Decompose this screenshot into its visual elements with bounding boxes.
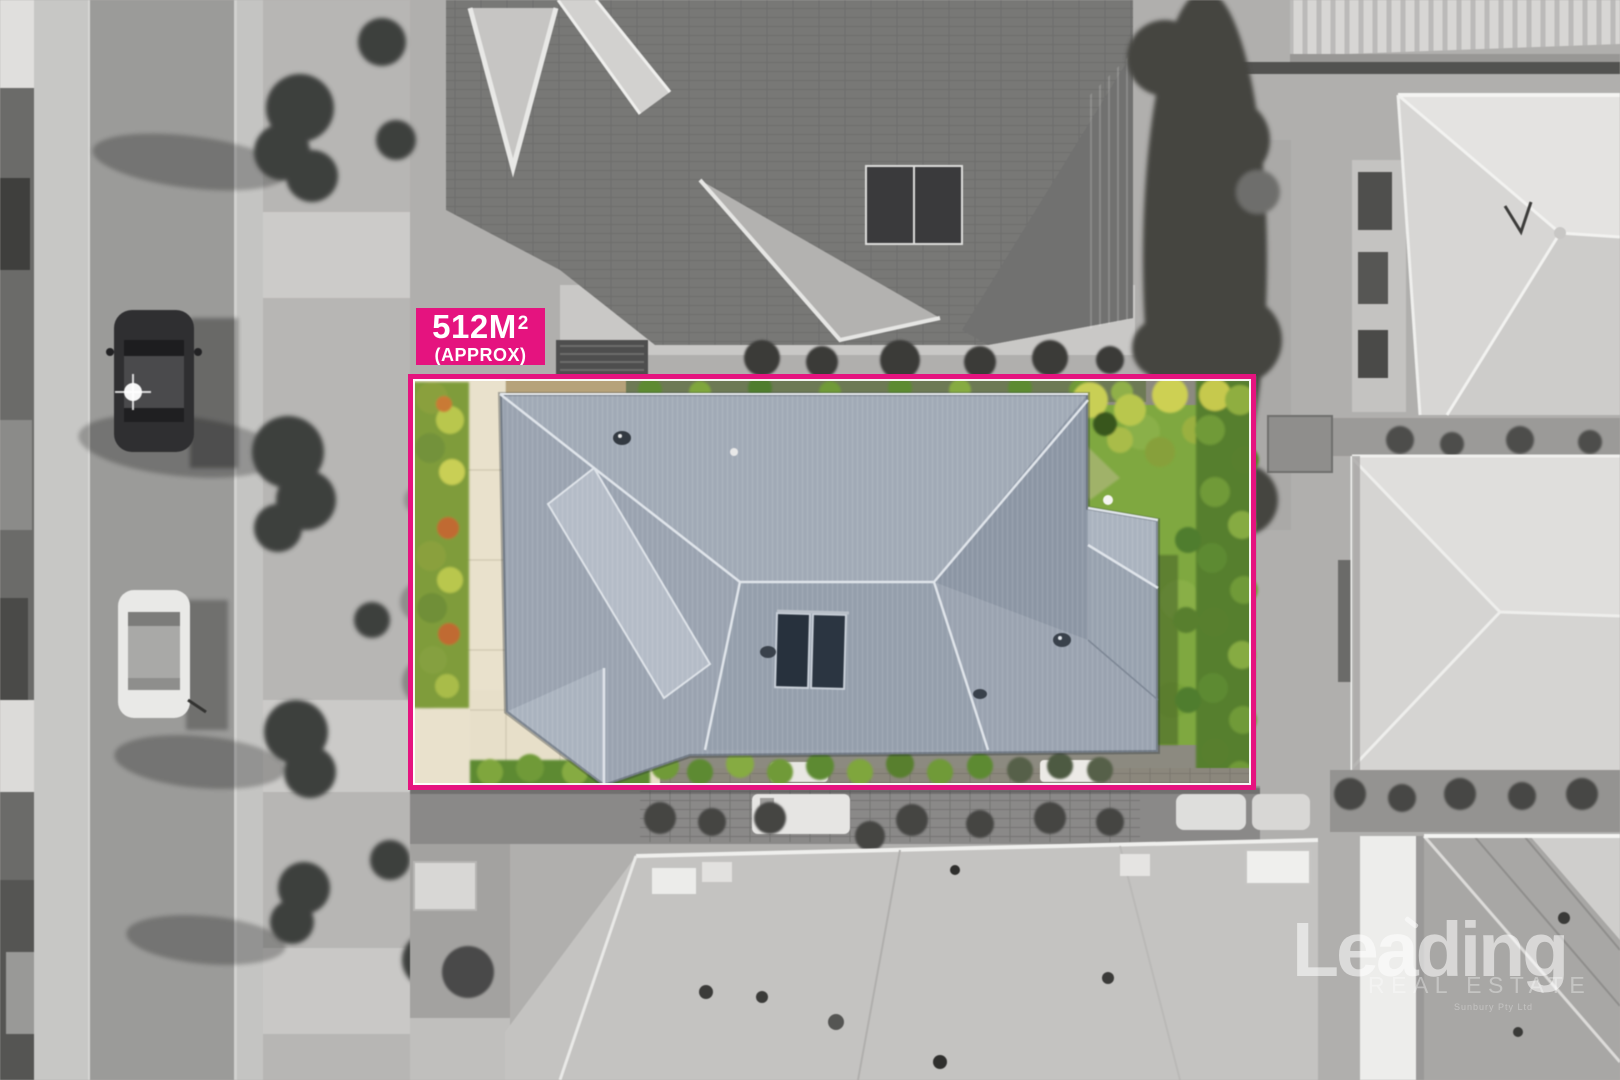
solar-panels [775,611,849,689]
street [0,0,458,1080]
golf-ball [1103,495,1113,505]
area-value: 512M2 [432,310,529,343]
area-number: 512M [432,308,517,345]
driveway-crossover [263,212,410,298]
south-house-roof [505,840,1318,1080]
highlighted-property [400,376,1259,788]
agency-watermark: Leading REAL ESTATE Sunbury Pty Ltd [1292,914,1572,1012]
area-qualifier: (APPROX) [434,346,526,364]
footpath-west [34,0,90,1080]
east-ground-gap [1330,418,1620,456]
west-garden-bed [413,382,469,708]
aerial-property-photo: 512M2 (APPROX) Leading REAL ESTATE Sunbu… [0,0,1620,1080]
south-tree [442,946,494,998]
parked-car-white [118,590,228,730]
garden-shed [1268,416,1332,472]
south-shed [414,862,476,910]
area-label: 512M2 (APPROX) [416,308,545,365]
far-left-roof [0,420,32,530]
property-roof [500,394,1158,786]
watermark-subtext: Sunbury Pty Ltd [1454,1002,1572,1012]
parked-car-dark [106,310,238,468]
far-left-roof [6,952,36,1034]
far-left-roof [0,178,30,270]
neighbour-house-south [505,840,1318,1080]
driveway-crossover [263,948,410,1034]
watermark-tagline: REAL ESTATE [1368,972,1572,999]
south-path [410,1018,510,1080]
neighbour-house-east-lower [1338,456,1620,770]
fence-line [1240,62,1620,74]
area-superscript: 2 [518,313,529,334]
